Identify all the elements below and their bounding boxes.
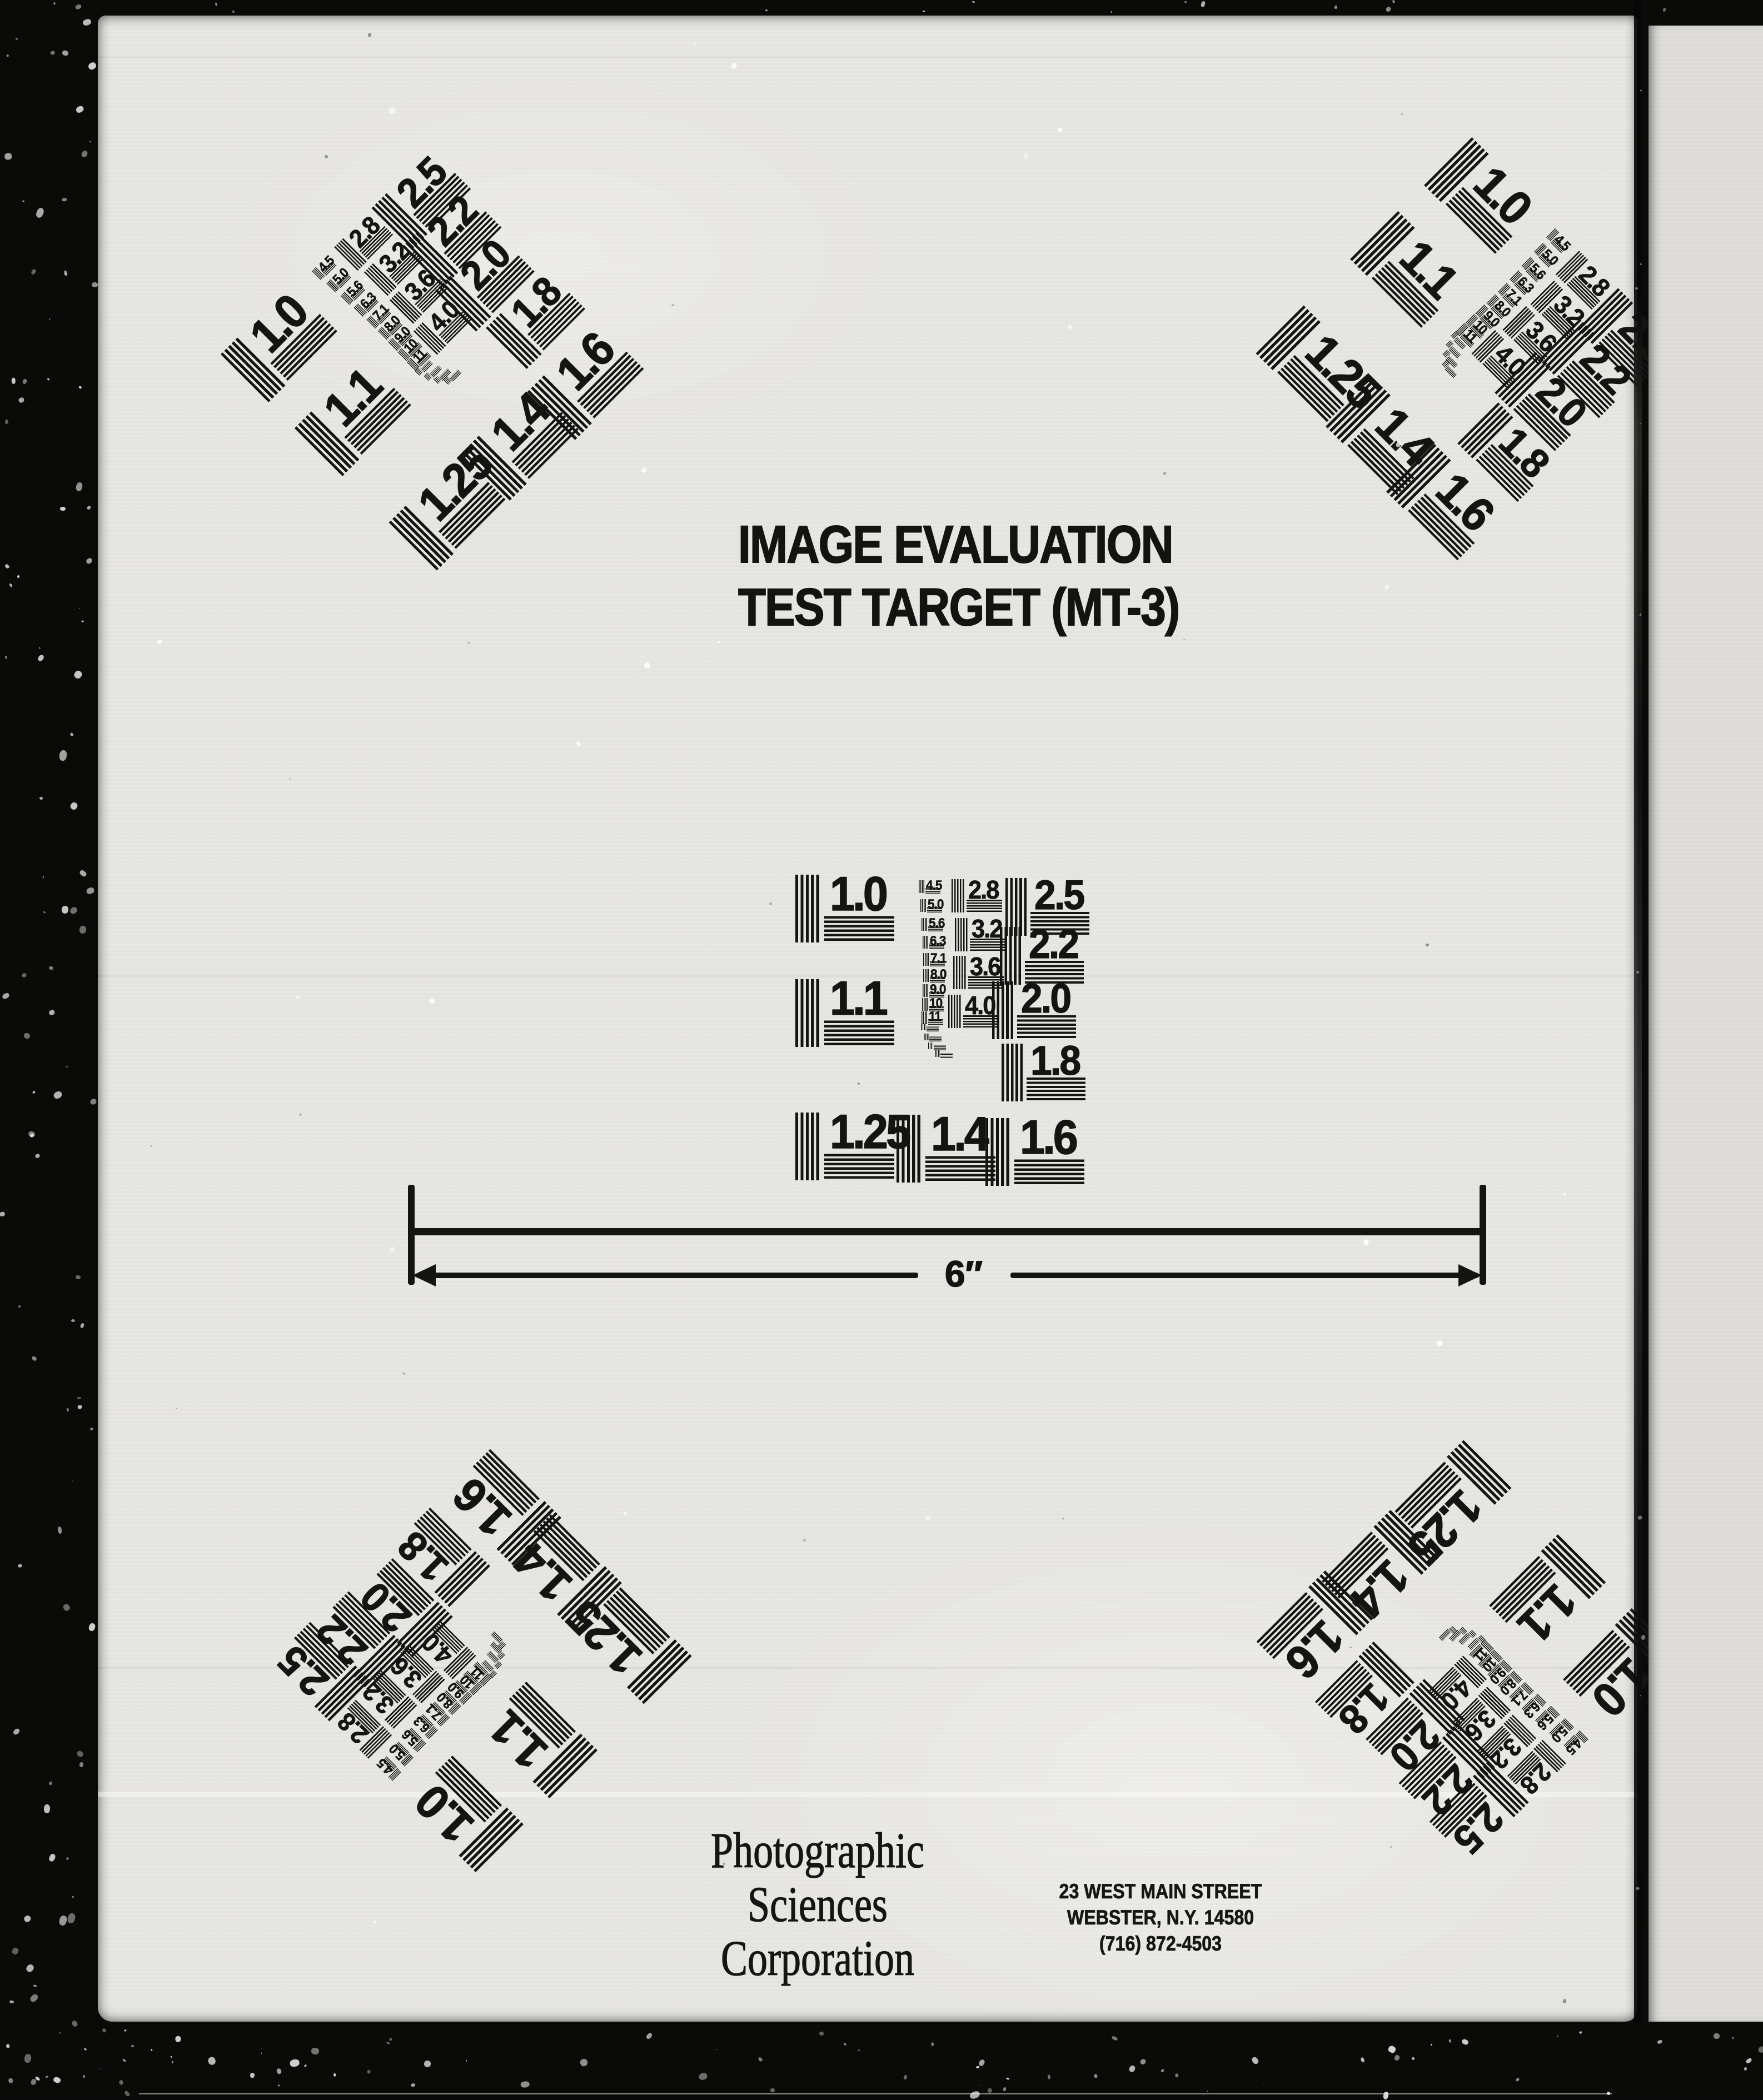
dust-speck (81, 621, 84, 623)
horizontal-bars (934, 1045, 946, 1050)
dust-speck (1656, 2039, 1662, 2045)
dust-speck (79, 608, 80, 609)
dust-speck (175, 2036, 181, 2042)
dust-speck (1426, 943, 1430, 946)
dust-speck (311, 2047, 319, 2055)
dust-speck (1557, 2035, 1559, 2037)
dust-speck (410, 2083, 415, 2087)
dust-speck (5, 420, 8, 424)
dust-speck (118, 2079, 123, 2084)
dust-speck (76, 1750, 84, 1758)
target-rotation-wrap: 1.01.11.251.41.62.52.22.01.82.83.23.64.0… (201, 118, 664, 582)
dust-speck (62, 1603, 71, 1612)
dust-speck (7, 54, 9, 57)
dust-speck (69, 906, 78, 915)
dust-speck (151, 2049, 152, 2051)
vertical-bars (795, 875, 821, 942)
vertical-bars (919, 880, 925, 893)
dust-speck (1093, 2074, 1098, 2079)
dust-speck (423, 2059, 431, 2068)
patch-value: 1.4 (931, 1110, 987, 1158)
vertical-bars (922, 1011, 928, 1024)
patch-value: 6.3 (930, 935, 946, 948)
arrowhead-right-icon (1458, 1264, 1482, 1286)
dust-speck (1139, 2058, 1147, 2065)
dust-speck (1006, 2077, 1010, 2080)
dust-speck (1431, 2044, 1433, 2046)
dust-speck (1390, 1846, 1392, 1848)
dust-speck (49, 966, 53, 970)
dust-speck (716, 2049, 717, 2050)
dust-speck (77, 1397, 81, 1399)
dust-speck (1360, 2057, 1365, 2063)
dust-speck (80, 149, 88, 158)
dust-speck (12, 1728, 20, 1736)
company-name-line: Sciences (617, 1878, 1018, 1932)
scanner-backdrop: IMAGE EVALUATION TEST TARGET (MT-3) 1.01… (0, 0, 1763, 2098)
address-line: 23 WEST MAIN STREET (992, 1878, 1330, 1904)
dust-speck (63, 270, 68, 277)
dust-speck (1160, 2068, 1164, 2073)
patch-value: 1.8 (1030, 1040, 1079, 1081)
patch-value: 3.2 (972, 916, 1002, 941)
dust-speck (79, 1762, 83, 1768)
dust-speck (80, 1323, 85, 1328)
dust-speck (124, 2029, 127, 2032)
vertical-bars (923, 953, 929, 966)
dust-speck (980, 2085, 982, 2086)
dust-speck (71, 1896, 74, 1898)
dust-speck (1024, 153, 1028, 159)
dust-speck (304, 2064, 307, 2068)
dust-speck (931, 2042, 934, 2046)
dust-speck (16, 38, 18, 40)
dust-speck (1385, 6, 1392, 13)
dust-speck (1745, 2057, 1752, 2064)
patch-value: 2.2 (1029, 924, 1078, 965)
dust-speck (8, 583, 12, 587)
dust-speck (31, 1355, 37, 1361)
dust-speck (46, 2076, 48, 2078)
vertical-bars (921, 1024, 926, 1030)
company-name-line: Photographic (617, 1824, 1018, 1878)
dust-speck (6, 2044, 10, 2048)
dust-speck (1201, 1, 1206, 7)
vertical-bars (992, 981, 1014, 1039)
vertical-bars (1002, 1044, 1024, 1101)
patch-value: 5.6 (929, 917, 945, 930)
dust-speck (1714, 2033, 1720, 2039)
patch-value: 9.0 (930, 983, 946, 996)
dust-speck (231, 10, 235, 13)
dust-speck (67, 1912, 76, 1924)
dust-speck (37, 654, 44, 662)
dust-speck (765, 9, 768, 12)
patch-value: 2.5 (1034, 875, 1083, 916)
dust-speck (520, 2081, 530, 2088)
horizontal-bars (1445, 366, 1457, 378)
dust-speck (53, 2, 56, 5)
dust-speck (52, 1090, 63, 1100)
address-line: WEBSTER, N.Y. 14580 (992, 1904, 1330, 1931)
dust-speck (819, 2031, 824, 2037)
patch-value: 3.6 (970, 954, 1000, 979)
dust-speck (17, 1564, 22, 1568)
dust-speck (1461, 2038, 1470, 2046)
resolution-target-bottom-left: 1.01.11.251.41.62.52.22.01.82.83.23.64.0… (310, 1494, 633, 1827)
ruler-arrow-line-right (1010, 1273, 1478, 1278)
resolution-target-top-right: 1.01.11.251.41.62.52.22.01.82.83.23.64.0… (1315, 182, 1637, 516)
patch-value: 4.0 (965, 992, 995, 1018)
dust-speck (42, 876, 44, 878)
patch-value: 1.6 (1020, 1114, 1076, 1161)
dust-speck (978, 2059, 985, 2067)
dust-speck (124, 2090, 131, 2097)
vertical-bars (923, 984, 929, 997)
vertical-bars (897, 1115, 922, 1183)
dust-speck (87, 61, 97, 71)
target-rotation-wrap: 1.01.11.251.41.62.52.22.01.82.83.23.64.0… (1236, 1429, 1700, 1892)
dust-speck (1387, 2044, 1397, 2053)
patch-value: 2.8 (968, 877, 998, 902)
dust-speck (215, 2, 217, 6)
dust-speck (4, 153, 12, 161)
dust-speck (102, 2028, 107, 2033)
dust-speck (84, 2047, 87, 2050)
target-rotation-wrap: 1.01.11.251.41.62.52.22.01.82.83.23.64.0… (787, 855, 1109, 1188)
company-name-line: Corporation (617, 1932, 1018, 1986)
dust-speck (71, 1319, 75, 1323)
dust-speck (69, 801, 78, 811)
patch-value: 2.0 (1021, 978, 1070, 1019)
dust-speck (59, 2032, 61, 2034)
dust-speck (25, 1963, 35, 1974)
vertical-bars (952, 879, 965, 912)
dust-speck (33, 1984, 36, 1987)
scan-streak (98, 57, 1637, 58)
horizontal-bars (927, 1026, 939, 1031)
dust-speck (1579, 2031, 1582, 2033)
dust-speck (18, 397, 25, 403)
target-rotation-wrap: 1.01.11.251.41.62.52.22.01.82.83.23.64.0… (240, 1429, 703, 1892)
dust-speck (62, 198, 67, 202)
dust-speck (1251, 2056, 1259, 2065)
dust-speck (12, 377, 16, 383)
dust-speck (770, 2088, 775, 2093)
dust-speck (699, 2072, 709, 2081)
dust-speck (86, 886, 95, 895)
dust-speck (579, 2058, 589, 2067)
dust-speck (843, 2043, 846, 2046)
dust-speck (39, 797, 43, 800)
dust-speck (1003, 2087, 1007, 2091)
dust-speck (1206, 2091, 1208, 2093)
patch-value: 11 (929, 1010, 941, 1024)
vertical-bars (985, 1118, 1011, 1186)
vertical-bars (928, 1042, 933, 1049)
horizontal-bars (1458, 1633, 1471, 1645)
patch-value: 10 (929, 997, 942, 1010)
patch-value: 7.1 (930, 952, 947, 965)
dust-speck (75, 4, 82, 10)
dust-speck (171, 2061, 173, 2064)
dust-speck (77, 1405, 82, 1410)
page-title: IMAGE EVALUATION TEST TARGET (MT-3) (738, 513, 1251, 639)
dust-speck (53, 2077, 61, 2084)
dust-speck (32, 1091, 36, 1094)
dust-speck (987, 2087, 993, 2093)
dust-speck (718, 641, 720, 643)
patch-value: 4.5 (926, 879, 942, 892)
arrowhead-left-icon (412, 1264, 436, 1286)
dust-speck (1110, 11, 1112, 13)
dust-speck (386, 2042, 390, 2045)
vertical-bars (955, 918, 968, 951)
patch-value: 1.1 (830, 975, 886, 1022)
dust-speck (66, 1066, 68, 1068)
dust-speck (969, 2090, 980, 2100)
dust-speck (23, 2053, 31, 2063)
dust-speck (1128, 2065, 1137, 2073)
resolution-target-bottom-right: 1.01.11.251.41.62.52.22.01.82.83.23.64.0… (1307, 1494, 1629, 1827)
dust-speck (1263, 2084, 1264, 2085)
dust-speck (57, 1527, 62, 1534)
dust-speck (858, 2049, 860, 2051)
dust-speck (67, 1408, 69, 1411)
resolution-target-top-left: 1.01.11.251.41.62.52.22.01.82.83.23.64.0… (271, 183, 594, 517)
dust-speck (367, 2069, 371, 2073)
dust-speck (1393, 2054, 1401, 2062)
dust-speck (9, 2000, 14, 2003)
dust-speck (276, 2068, 282, 2074)
dust-speck (22, 378, 27, 385)
dust-speck (58, 1915, 68, 1926)
vertical-bars (923, 969, 929, 982)
scratch-line (139, 2093, 1612, 2094)
title-line-2: TEST TARGET (MT-3) (738, 576, 1179, 639)
dust-speck (22, 201, 25, 202)
vertical-bars (795, 1113, 821, 1180)
dust-speck (69, 732, 74, 737)
dust-speck (83, 18, 92, 27)
dust-speck (1731, 2036, 1734, 2039)
resolution-target-center: 1.01.11.251.41.62.52.22.01.82.83.23.64.0… (787, 855, 1109, 1188)
test-chart-page: IMAGE EVALUATION TEST TARGET (MT-3) 1.01… (98, 16, 1637, 2022)
dust-speck (290, 2059, 300, 2068)
dust-speck (923, 11, 925, 13)
patch-value: 1.0 (830, 870, 886, 918)
ruler-bar (408, 1228, 1486, 1235)
dust-speck (75, 482, 83, 492)
dust-speck (17, 575, 19, 578)
page-fold-line (1634, 0, 1642, 2024)
dust-speck (1744, 2067, 1748, 2071)
dust-speck (2, 992, 11, 1000)
dust-speck (0, 1211, 6, 1217)
dust-speck (1184, 1, 1187, 4)
vertical-bars (920, 899, 927, 912)
vertical-bars (922, 998, 928, 1011)
dust-speck (903, 2074, 908, 2079)
dust-speck (21, 972, 27, 978)
address-line: (716) 872-4503 (992, 1931, 1330, 1957)
dust-speck (23, 1914, 32, 1923)
dust-speck (278, 2084, 280, 2086)
dust-speck (170, 2056, 172, 2058)
dust-speck (1334, 6, 1338, 9)
dust-speck (4, 563, 9, 568)
dust-speck (59, 750, 67, 761)
dust-speck (78, 869, 87, 877)
dust-speck (27, 1130, 36, 1139)
vertical-bars (795, 979, 821, 1047)
dust-speck (1636, 1887, 1640, 1889)
dust-speck (1111, 2036, 1118, 2041)
dust-speck (66, 1857, 69, 1860)
dust-speck (79, 926, 87, 935)
vertical-bars (935, 1050, 940, 1057)
dust-speck (333, 2073, 335, 2077)
dust-speck (49, 318, 50, 320)
dust-speck (11, 1947, 19, 1956)
dust-speck (60, 506, 66, 510)
dust-speck (71, 2019, 78, 2027)
title-line-1: IMAGE EVALUATION (738, 513, 1179, 576)
dust-speck (29, 1993, 39, 2003)
dust-speck (62, 49, 69, 56)
dust-speck (261, 2052, 262, 2054)
ruler-arrow-line-left (418, 1273, 918, 1278)
horizontal-bars (449, 370, 461, 382)
dust-speck (89, 1098, 97, 1105)
dust-speck (8, 2078, 13, 2084)
dust-speck (89, 1427, 93, 1430)
dust-speck (1392, 0, 1395, 3)
vertical-bars (922, 918, 928, 931)
dust-speck (972, 1, 974, 3)
dust-speck (1640, 89, 1642, 92)
dust-speck (122, 2059, 126, 2063)
dust-speck (48, 1853, 57, 1862)
dust-speck (1349, 1646, 1353, 1648)
dust-speck (1515, 2077, 1520, 2082)
dust-speck (250, 2073, 255, 2078)
vertical-bars (923, 936, 929, 949)
horizontal-bars (929, 1036, 942, 1041)
dust-speck (1448, 2039, 1452, 2043)
dust-speck (38, 647, 40, 649)
dust-speck (758, 2057, 763, 2062)
dust-speck (18, 1305, 21, 1308)
dust-speck (466, 2060, 467, 2062)
vertical-bars (953, 956, 967, 989)
dust-speck (34, 1153, 40, 1159)
company-address: 23 WEST MAIN STREET WEBSTER, N.Y. 14580 … (966, 1878, 1355, 1957)
dust-speck (131, 2044, 134, 2047)
dust-speck (43, 911, 46, 913)
dust-speck (73, 670, 83, 680)
dust-speck (89, 141, 91, 143)
dust-speck (47, 378, 49, 381)
ruler-length-label: 6″ (945, 1253, 983, 1295)
dust-speck (23, 1032, 31, 1039)
dust-speck (72, 1480, 73, 1482)
adjacent-page-edge (1649, 26, 1763, 2022)
patch-value: 5.0 (928, 898, 944, 911)
dust-speck (92, 282, 98, 287)
horizontal-bars (940, 1053, 953, 1058)
dust-speck (99, 2068, 101, 2070)
dust-speck (83, 2075, 86, 2078)
dust-speck (1662, 8, 1666, 12)
dust-speck (1607, 2092, 1611, 2096)
dust-speck (976, 2066, 980, 2069)
dust-speck (389, 2038, 392, 2042)
dust-speck (35, 207, 45, 218)
dust-speck (44, 1804, 51, 1813)
dust-speck (88, 1623, 96, 1632)
dust-speck (49, 1782, 53, 1785)
dust-speck (1175, 2073, 1178, 2078)
dust-speck (48, 1009, 55, 1016)
dust-speck (61, 906, 69, 914)
dust-speck (75, 1275, 81, 1280)
vertical-bars (924, 1034, 929, 1040)
dust-speck (4, 655, 7, 659)
dust-speck (85, 557, 93, 565)
dust-speck (1758, 2046, 1763, 2053)
dust-speck (31, 268, 37, 275)
patch-value: 8.0 (930, 968, 947, 981)
dust-speck (645, 2032, 653, 2040)
dust-speck (78, 386, 82, 389)
vertical-bars (948, 995, 962, 1028)
dust-speck (1048, 2075, 1051, 2079)
dust-speck (75, 104, 85, 114)
dust-speck (207, 2056, 217, 2066)
dust-speck (1411, 2057, 1415, 2060)
dust-speck (50, 51, 56, 56)
dust-speck (87, 505, 92, 510)
